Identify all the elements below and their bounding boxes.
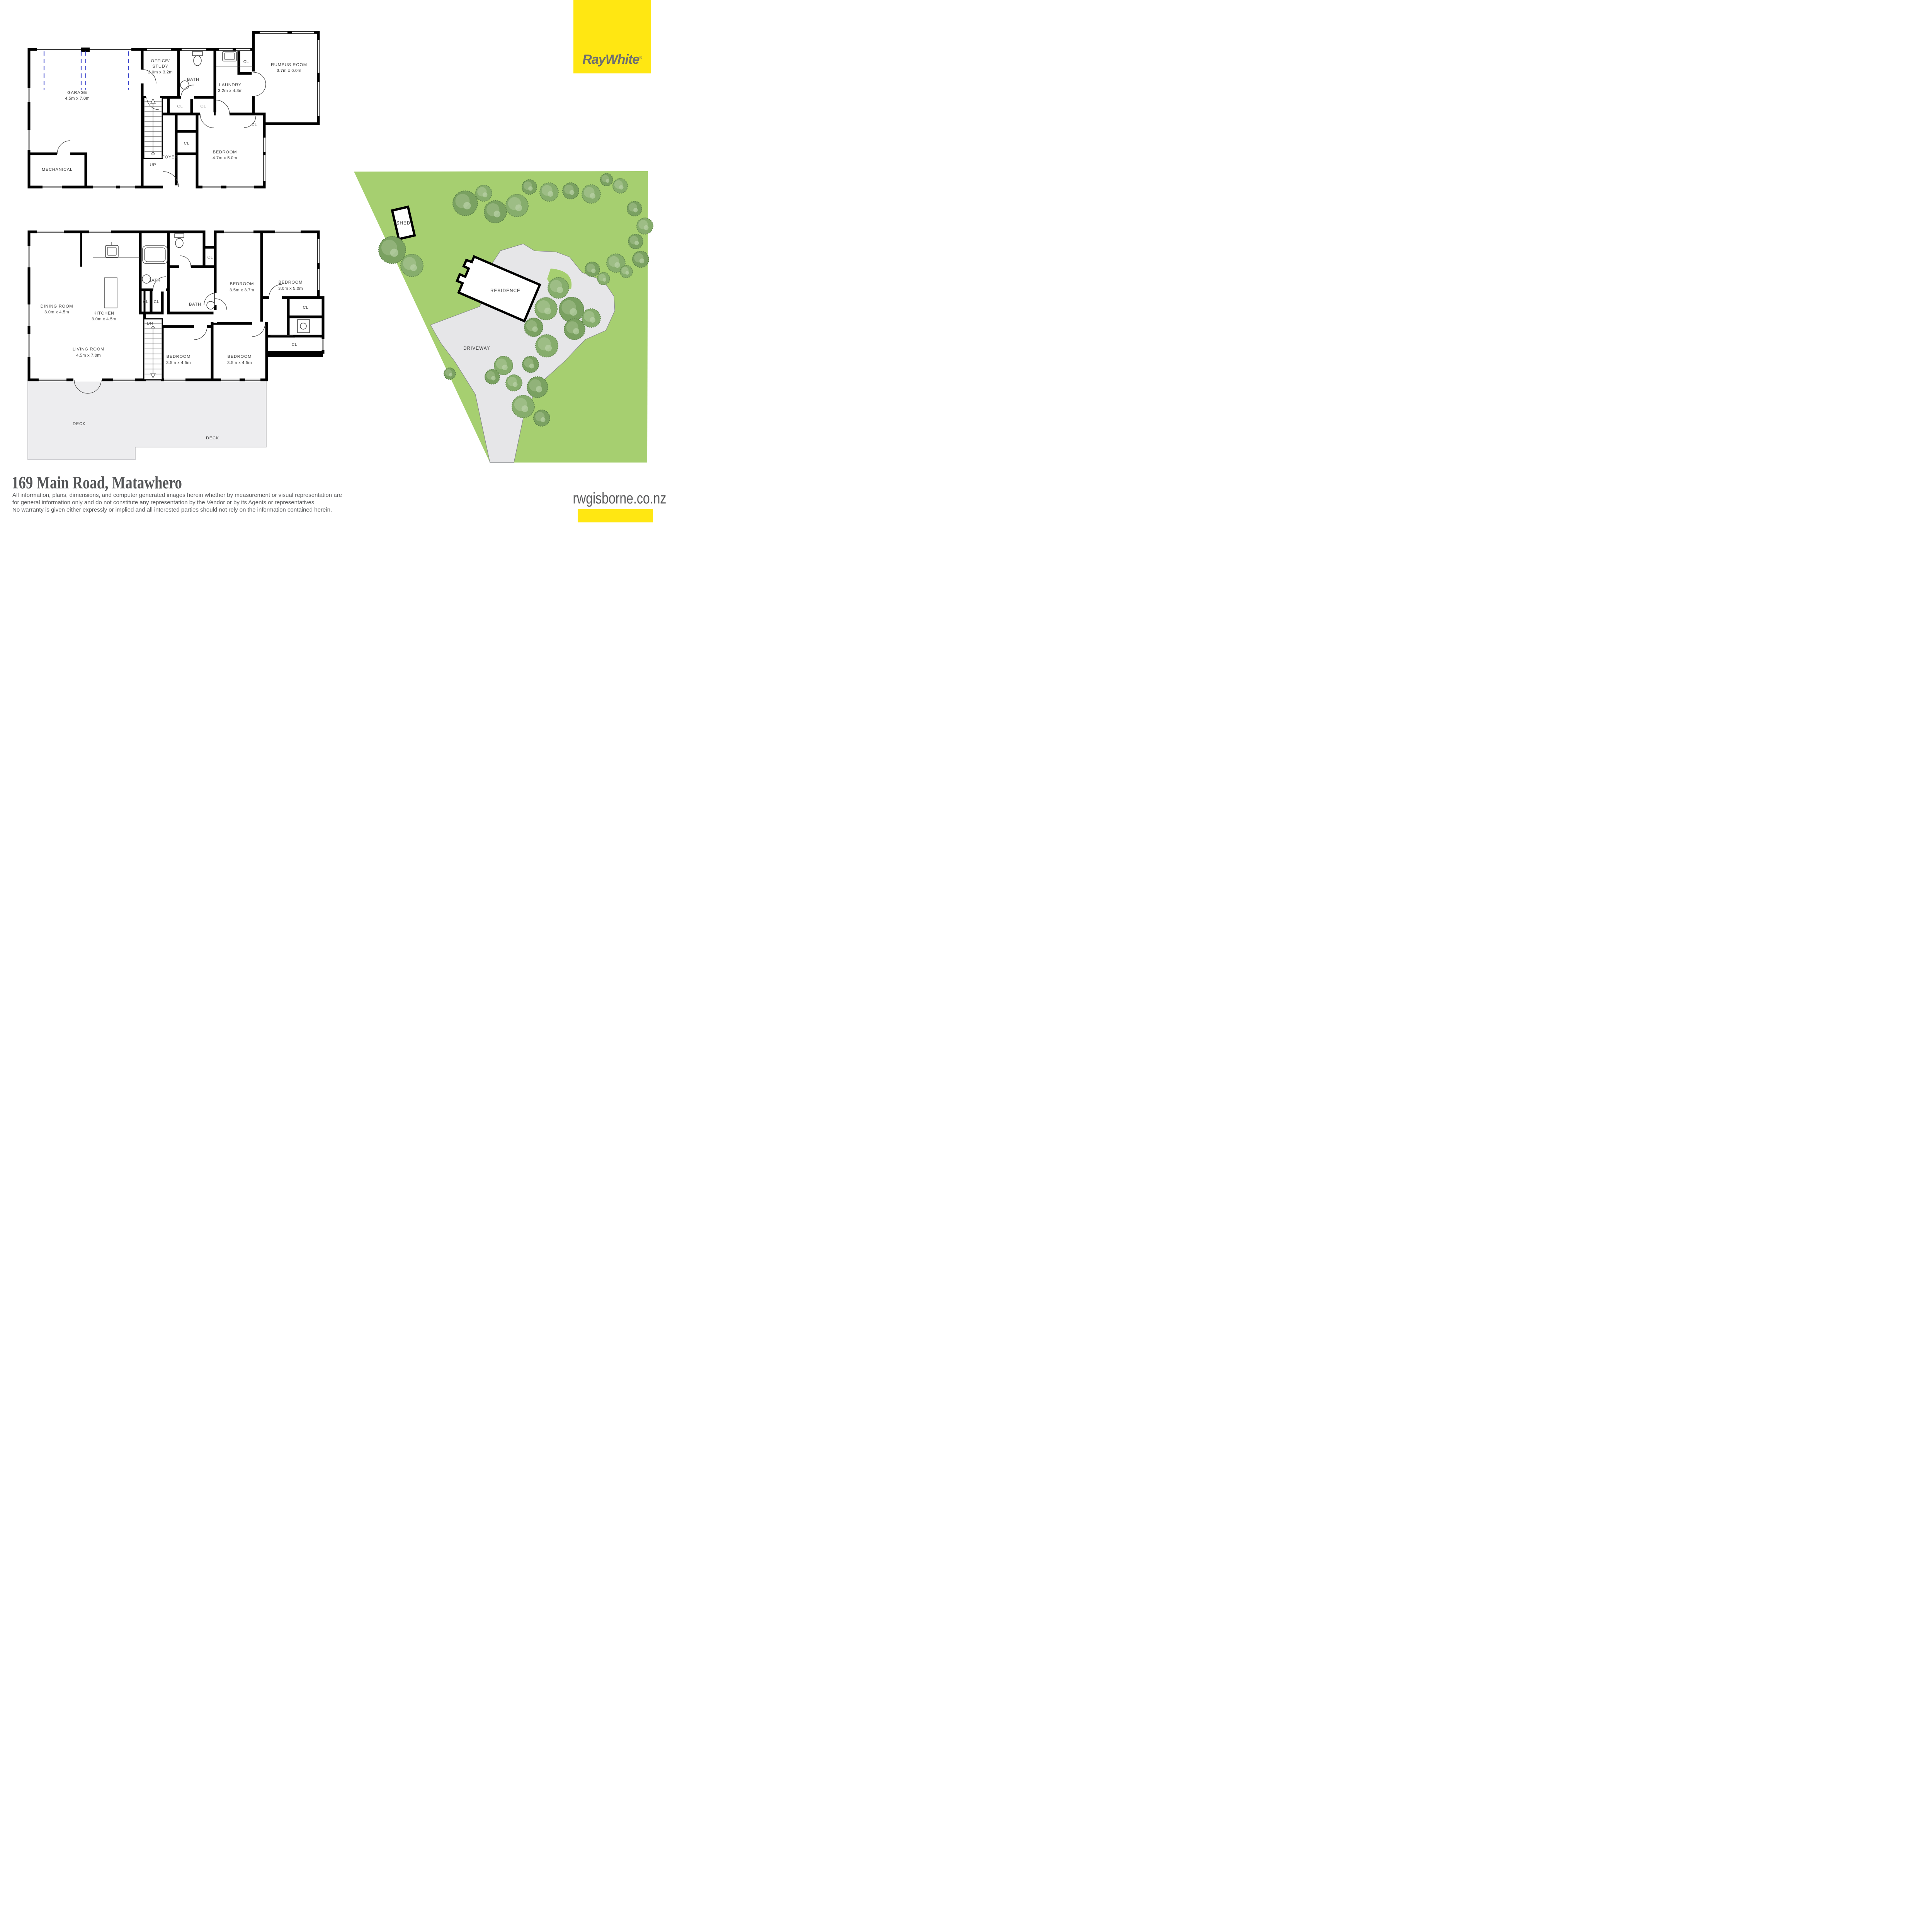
- tree-icon: [627, 201, 642, 216]
- tree-icon: [444, 368, 456, 379]
- tree-icon: [582, 309, 600, 327]
- room-label-foyer: FOYER: [162, 155, 178, 160]
- window: [27, 88, 31, 102]
- brand-yellow-square: [578, 509, 653, 522]
- tree-icon: [628, 234, 643, 249]
- room-dims-garage: 4.5m x 7.0m: [65, 96, 90, 101]
- window: [260, 31, 287, 34]
- tree-icon: [476, 185, 492, 201]
- tree-icon: [401, 254, 423, 277]
- closet-label: CL: [207, 255, 213, 260]
- window: [27, 130, 31, 150]
- sink-icon: [300, 323, 306, 329]
- window: [39, 378, 66, 382]
- tree-icon: [506, 375, 522, 391]
- closet-label: CL: [143, 299, 148, 304]
- window: [224, 230, 253, 234]
- window: [43, 185, 62, 189]
- room-wc: [168, 232, 204, 267]
- room-label-bedroom4: BEDROOM: [228, 354, 252, 359]
- tree-icon: [633, 251, 649, 267]
- tree-icon: [522, 356, 539, 372]
- disclaimer-line: All information, plans, dimensions, and …: [12, 492, 342, 499]
- window: [182, 48, 206, 51]
- stairs-down: [144, 319, 162, 380]
- toilet-icon: [175, 234, 184, 238]
- shed-label: SHED: [396, 221, 411, 226]
- room-label-bedroom1: BEDROOM: [230, 282, 254, 286]
- room-dims-bedroom-upper: 4.7m x 5.0m: [213, 156, 237, 160]
- toilet-icon: [192, 51, 202, 56]
- room-dims-laundry: 3.2m x 4.3m: [218, 88, 243, 93]
- stairs-label-dn: DN: [147, 321, 153, 326]
- room-label-rumpus: RUMPUS ROOM: [271, 63, 307, 67]
- window: [317, 40, 320, 73]
- sink-icon: [207, 301, 214, 309]
- window: [120, 185, 135, 189]
- closet-label: CL: [252, 122, 257, 127]
- room-label-kitchen: KITCHEN: [94, 311, 114, 316]
- tree-icon: [585, 262, 600, 277]
- raywhite-logo: RayWhite®: [573, 0, 651, 73]
- room-dims-office: 2.0m x 3.2m: [148, 70, 173, 75]
- window: [147, 48, 171, 51]
- room-dims-rumpus: 3.7m x 6.0m: [277, 68, 301, 73]
- window: [113, 378, 135, 382]
- wall-band: [266, 351, 323, 357]
- window: [236, 48, 250, 51]
- tree-icon: [540, 183, 558, 201]
- floorplan-sheet: SHED RESIDENCE DRIVEWAY: [0, 0, 676, 522]
- room-bedroom1: [215, 232, 262, 323]
- room-label-dining: DINING ROOM: [41, 304, 73, 309]
- property-address: 169 Main Road, Matawhero: [12, 472, 182, 493]
- tree-icon: [535, 298, 557, 320]
- window: [221, 378, 240, 382]
- site-plan: SHED RESIDENCE DRIVEWAY: [354, 171, 653, 463]
- deck-label: DECK: [206, 436, 219, 440]
- tree-icon: [536, 335, 558, 357]
- bathtub-icon: [143, 246, 167, 264]
- residence-label: RESIDENCE: [490, 289, 520, 293]
- tree-icon: [506, 194, 528, 217]
- tree-icon: [620, 265, 633, 278]
- room-dims-bedroom2: 3.0m x 5.0m: [278, 286, 303, 291]
- room-dims-bedroom4: 3.5m x 4.5m: [227, 361, 252, 365]
- tree-icon: [559, 297, 584, 322]
- disclaimer-line: No warranty is given either expressly or…: [12, 506, 342, 514]
- room-dims-kitchen: 3.0m x 4.5m: [92, 317, 116, 321]
- window: [93, 185, 116, 189]
- closet-label: CL: [177, 104, 183, 109]
- tree-icon: [534, 410, 550, 426]
- closet-label: CL: [201, 104, 206, 109]
- disclaimer-line: for general information only and do not …: [12, 499, 342, 506]
- floor-plan-ground: DINING ROOM 3.0m x 4.5m KITCHEN 3.0m x 4…: [28, 232, 323, 460]
- tree-icon: [485, 369, 500, 384]
- driveway-label: DRIVEWAY: [463, 346, 490, 351]
- closet-label: CL: [154, 299, 159, 304]
- registered-mark: ®: [639, 56, 641, 60]
- room-label-laundry: LAUNDRY: [219, 83, 241, 87]
- room-dims-living: 4.5m x 7.0m: [76, 353, 101, 358]
- room-label-bath2: BATH: [189, 302, 201, 307]
- window: [89, 230, 111, 234]
- stairs-up: [144, 97, 162, 158]
- window: [292, 31, 314, 34]
- room-label-bath-upper: BATH: [187, 77, 199, 82]
- room-dims-bedroom3: 3.5m x 4.5m: [166, 361, 191, 365]
- plan-canvas: SHED RESIDENCE DRIVEWAY: [0, 0, 676, 522]
- window: [27, 304, 31, 326]
- agency-website[interactable]: rwgisborne.co.nz: [573, 490, 666, 507]
- window: [245, 378, 260, 382]
- tree-icon: [563, 183, 579, 199]
- window: [317, 269, 320, 290]
- tree-icon: [512, 395, 534, 418]
- window: [202, 185, 221, 189]
- window: [275, 230, 301, 234]
- window: [164, 378, 185, 382]
- deck: [28, 380, 266, 460]
- tree-icon: [613, 179, 628, 193]
- room-label-garage: GARAGE: [67, 90, 87, 95]
- tree-icon: [600, 173, 613, 186]
- kitchen-island: [104, 278, 117, 308]
- window: [263, 138, 266, 152]
- disclaimer: All information, plans, dimensions, and …: [12, 492, 342, 514]
- closet-label: CL: [292, 342, 297, 347]
- room-dims-bedroom1: 3.5m x 3.7m: [230, 288, 254, 293]
- tree-icon: [453, 191, 478, 216]
- window: [317, 82, 320, 116]
- closet-label: CL: [303, 305, 308, 310]
- window: [321, 339, 325, 350]
- deck-label: DECK: [73, 422, 86, 426]
- tree-icon: [527, 377, 548, 398]
- tree-icon: [597, 272, 610, 285]
- closet-label: CL: [243, 60, 249, 64]
- window: [219, 48, 233, 51]
- window: [27, 334, 31, 357]
- tree-icon: [564, 319, 585, 340]
- window: [263, 155, 266, 181]
- room-label-office-1: OFFICE/: [151, 59, 170, 63]
- room-label-living: LIVING ROOM: [73, 347, 104, 352]
- closet-label: CL: [184, 141, 189, 146]
- tree-icon: [524, 318, 543, 337]
- room-label-office-2: STUDY: [152, 64, 168, 69]
- room-bedroom4: [212, 323, 267, 380]
- sink-icon: [180, 81, 189, 89]
- plan1-walls: [29, 32, 318, 187]
- room-label-bedroom3: BEDROOM: [167, 354, 190, 359]
- window: [37, 230, 64, 234]
- room-label-mechanical: MECHANICAL: [42, 167, 73, 172]
- window: [226, 185, 254, 189]
- window: [317, 239, 320, 263]
- room-dims-dining: 3.0m x 4.5m: [44, 310, 69, 315]
- logo-text: RayWhite: [582, 52, 639, 67]
- floor-plan-upper: GARAGE 4.5m x 7.0m MECHANICAL OFFICE/ ST…: [29, 32, 318, 187]
- toilet-icon: [194, 56, 201, 66]
- tree-icon: [582, 185, 600, 203]
- tree-icon: [637, 218, 653, 234]
- window: [27, 246, 31, 267]
- tree-icon: [379, 236, 406, 264]
- room-rumpus: [253, 32, 318, 124]
- tree-icon: [548, 277, 569, 298]
- tree-icon: [484, 201, 507, 223]
- stairs-label-up: UP: [150, 163, 156, 167]
- tree-icon: [522, 180, 537, 194]
- toilet-icon: [175, 238, 183, 248]
- room-label-bedroom-upper: BEDROOM: [213, 150, 237, 155]
- room-label-bedroom2: BEDROOM: [279, 280, 303, 285]
